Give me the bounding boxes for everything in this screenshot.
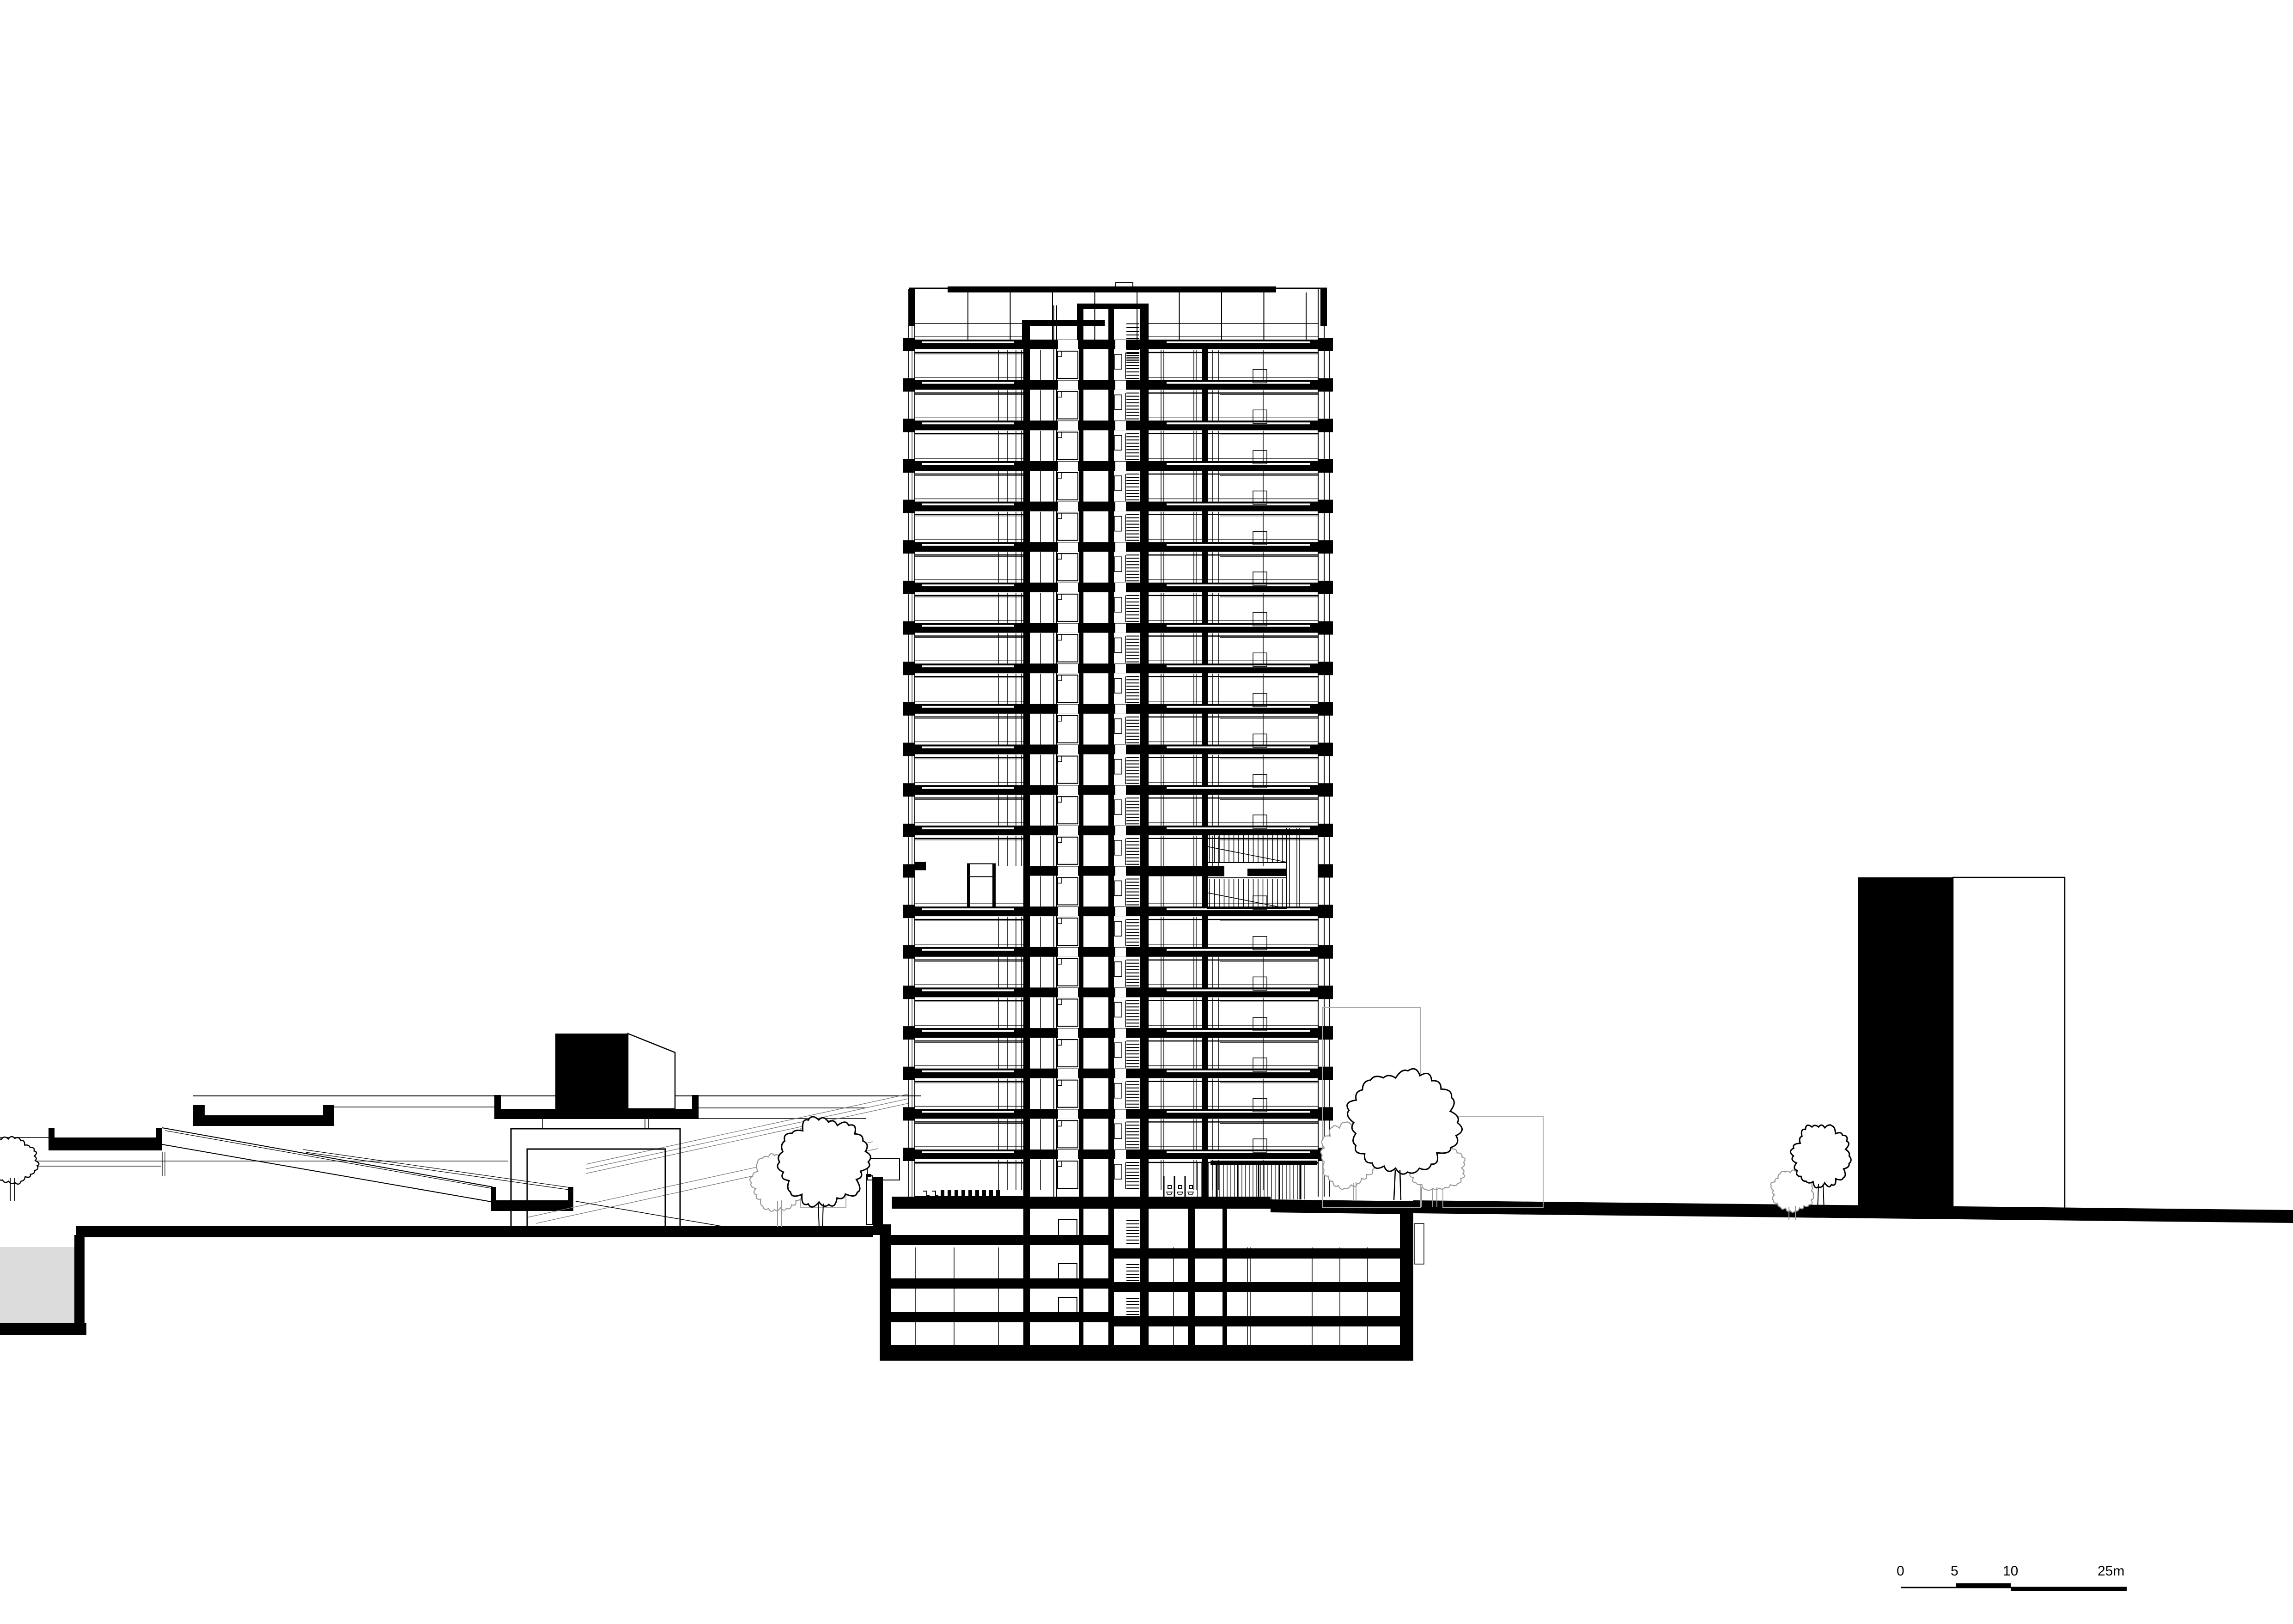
svg-text:10: 10 — [2003, 1563, 2018, 1579]
svg-text:5: 5 — [1951, 1563, 1958, 1579]
svg-text:0: 0 — [1897, 1563, 1904, 1579]
svg-text:25m: 25m — [2098, 1563, 2124, 1579]
